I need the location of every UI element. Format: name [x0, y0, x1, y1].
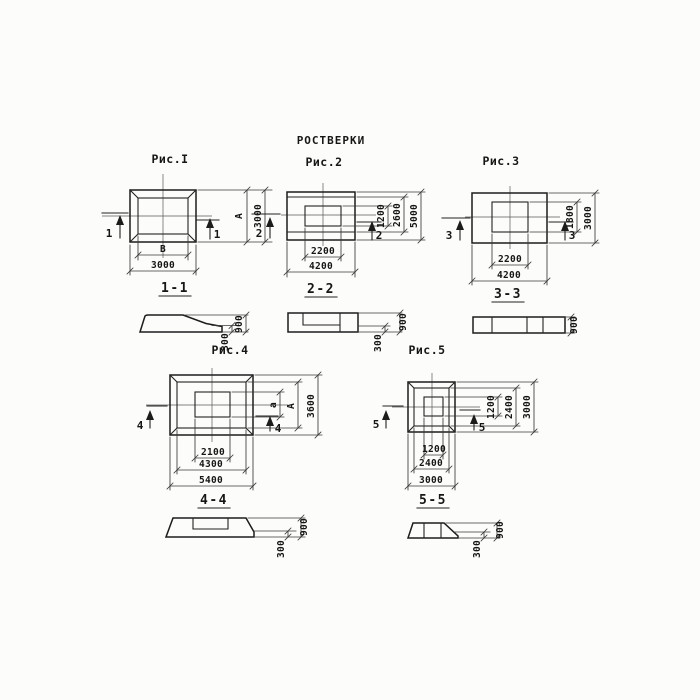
fig3-caption: Рис.3 [482, 154, 519, 168]
section-2-2-recess [303, 313, 340, 332]
section-4-4-title: 4-4 [200, 493, 228, 508]
fig4-marker-right-arrow-icon [266, 416, 274, 426]
fig2-dim-2200: 2200 [311, 246, 335, 257]
fig3-centerlines [465, 186, 560, 249]
section-5-5-joints [424, 523, 441, 538]
fig5: Рис.5 1200 2400 3000 1200 2400 3000 5 5 … [373, 343, 538, 558]
fig3: Рис.3 1800 3000 2200 4200 3 3 3-3 900 [442, 154, 599, 336]
fig2-marker-right-label: 2 [376, 229, 383, 242]
section-2-2-profile [288, 313, 358, 332]
fig4-marker-left-label: 4 [137, 419, 144, 432]
drawing-sheet: РОСТВЕРКИ Рис.I А 3000 В 3000 1 1 1-1 30… [0, 0, 700, 700]
fig2-dim-2600: 2600 [392, 203, 403, 227]
section-4-4-dim-900: 900 [299, 518, 310, 536]
fig2-dim-5000: 5000 [409, 204, 420, 228]
fig1-marker-left-label: 1 [106, 227, 113, 240]
fig4: Рис.4 а А 3600 2100 4300 5400 4 4 4-4 30… [137, 343, 322, 558]
fig5-dim-1200-right: 1200 [486, 395, 497, 419]
fig1-marker-right-label: 1 [214, 228, 221, 241]
grillage-drawing: РОСТВЕРКИ Рис.I А 3000 В 3000 1 1 1-1 30… [0, 0, 700, 700]
fig2-marker-left-arrow-icon [266, 217, 274, 227]
fig4-marker-right-label: 4 [275, 422, 282, 435]
drawing-title: РОСТВЕРКИ [297, 134, 366, 147]
fig4-dim-3600: 3600 [306, 394, 317, 418]
fig4-dim-4300: 4300 [199, 459, 223, 470]
fig4-centerlines [146, 368, 288, 442]
fig2: Рис.2 1200 2600 5000 2200 4200 2 2 2-2 3… [252, 155, 425, 352]
fig2-caption: Рис.2 [305, 155, 342, 169]
section-1-1-title: 1-1 [161, 281, 189, 296]
fig3-dim-2200: 2200 [498, 254, 522, 265]
fig3-outer-edge [472, 193, 547, 243]
fig4-dim-5400: 5400 [199, 475, 223, 486]
fig4-caption: Рис.4 [211, 343, 248, 357]
fig2-dim-4200: 4200 [309, 261, 333, 272]
fig3-dim-4200: 4200 [497, 270, 521, 281]
section-4-4-profile [166, 518, 254, 537]
fig5-marker-right-lines [460, 410, 480, 430]
fig3-marker-left-label: 3 [446, 229, 453, 242]
section-5-5-dim-lines [446, 523, 500, 538]
fig5-opening [424, 397, 443, 416]
fig5-marker-left-arrow-icon [382, 410, 390, 420]
fig3-marker-left-arrow-icon [456, 220, 464, 230]
fig5-caption: Рис.5 [408, 343, 445, 357]
fig1-dim-B: В [160, 244, 166, 255]
section-1-1-profile [140, 315, 222, 332]
fig1: Рис.I А 3000 В 3000 1 1 1-1 300 900 [102, 152, 272, 351]
fig1-dim-3000-right: 3000 [253, 204, 264, 228]
fig1-dim-A: А [234, 213, 245, 219]
fig2-steps [287, 197, 355, 232]
section-2-2-dim-lines [358, 313, 402, 332]
section-3-3-profile [473, 317, 565, 333]
section-2-2-dim-300: 300 [373, 334, 384, 352]
fig5-dim-1200-bottom: 1200 [422, 444, 446, 455]
section-4-4-dim-lines [248, 518, 305, 537]
section-3-3-dim-900: 900 [569, 316, 580, 334]
section-5-5-dim-300: 300 [472, 540, 483, 558]
section-4-4-recess [193, 518, 228, 529]
section-5-5-title: 5-5 [419, 493, 447, 508]
section-2-2-title: 2-2 [307, 282, 335, 297]
fig5-marker-left-label: 5 [373, 418, 380, 431]
section-3-3-joints [492, 317, 543, 333]
fig5-dim-3000-right: 3000 [522, 395, 533, 419]
fig4-marker-left-arrow-icon [146, 410, 154, 420]
fig5-dim-2400-bottom: 2400 [419, 458, 443, 469]
fig5-dim-3000-bottom: 3000 [419, 475, 443, 486]
section-1-1-dim-900: 900 [234, 315, 245, 333]
fig4-dim-2100: 2100 [201, 447, 225, 458]
fig2-dim-1200: 1200 [376, 204, 387, 228]
section-2-2-dim-900: 900 [398, 313, 409, 331]
section-5-5-profile [408, 523, 458, 538]
fig1-marker-left-arrow-icon [116, 215, 124, 225]
fig5-marker-right-arrow-icon [470, 414, 478, 424]
fig5-dim-2400-right: 2400 [504, 395, 515, 419]
section-5-5-dim-900: 900 [495, 521, 506, 539]
fig1-dim-3000-bottom: 3000 [151, 260, 175, 271]
fig5-marker-right-label: 5 [479, 421, 486, 434]
section-3-3-title: 3-3 [494, 287, 522, 302]
fig3-dim-3000: 3000 [583, 206, 594, 230]
fig4-opening [195, 392, 230, 417]
fig2-marker-left-label: 2 [256, 227, 263, 240]
fig4-dim-a-small: а [268, 402, 279, 408]
fig1-caption: Рис.I [151, 152, 188, 166]
fig2-outer-edge [287, 192, 355, 240]
fig4-dim-A: А [286, 403, 297, 409]
fig3-marker-right-label: 3 [569, 229, 576, 242]
section-4-4-dim-300: 300 [276, 540, 287, 558]
